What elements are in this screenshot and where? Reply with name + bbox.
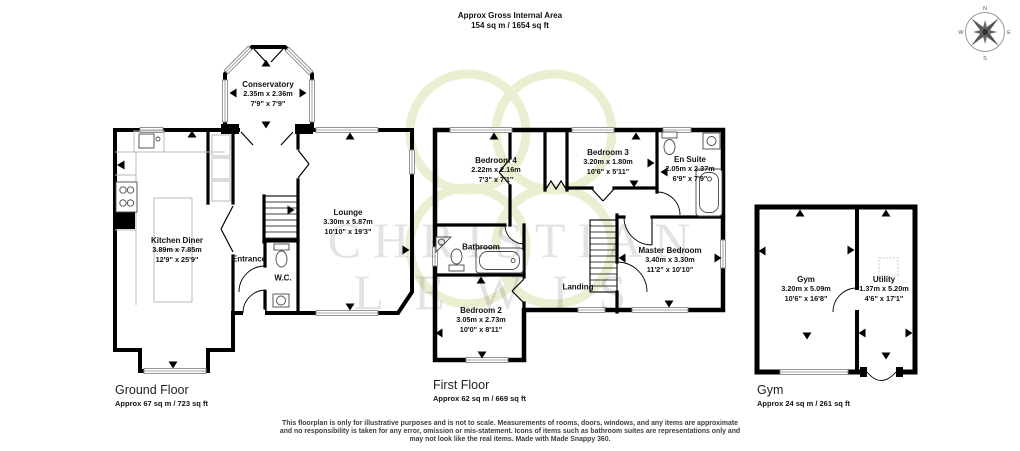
- disclaimer-line2: and no responsibility is taken for any e…: [0, 428, 1020, 436]
- ground-floor-label: Ground Floor Approx 67 sq m / 723 sq ft: [115, 383, 208, 408]
- window: [578, 308, 605, 313]
- toilet-icon: [662, 132, 677, 155]
- room-label-en-suite: En Suite 2.05m x 2.37m 6'9" x 7'9": [665, 155, 715, 183]
- window: [450, 128, 512, 133]
- first-floor-label: First Floor Approx 62 sq m / 669 sq ft: [433, 378, 526, 403]
- camera-marker: [288, 206, 295, 215]
- camera-marker: [262, 122, 271, 129]
- door-arc: [833, 288, 857, 312]
- gross-area-value: 154 sq m / 1654 sq ft: [0, 21, 1020, 31]
- compass-south-label: S: [983, 56, 987, 62]
- corner-sink-icon: [436, 237, 451, 252]
- compass-west-label: W: [958, 30, 964, 36]
- room-label-utility: Utility 1.37m x 5.20m 4'6" x 17'1": [859, 275, 909, 303]
- door-jamb: [860, 367, 867, 377]
- room-label-entrance: Entrance: [232, 254, 266, 263]
- tank-icon: [879, 258, 898, 276]
- room-label-bathroom: Bathroom: [462, 242, 500, 251]
- camera-marker: [882, 353, 891, 360]
- room-label-kitchen-diner: Kitchen Diner 3.89m x 7.85m 12'9" x 25'9…: [151, 236, 203, 264]
- camera-marker: [619, 254, 626, 263]
- room-label-master-bedroom: Master Bedroom 3.40m x 3.30m 11'2" x 10'…: [638, 246, 701, 274]
- window: [316, 311, 378, 316]
- cupboard: [212, 158, 230, 179]
- disclaimer-line1: This floorplan is only for illustrative …: [0, 420, 1020, 428]
- toilet-icon: [449, 249, 464, 271]
- room-label-landing: Landing: [562, 282, 593, 291]
- camera-marker: [665, 301, 674, 308]
- hob-icon: [116, 182, 137, 212]
- room-label-bedroom-4: Bedroom 4 2.22m x 2.16m 7'3" x 7'1": [471, 156, 521, 184]
- camera-marker: [859, 329, 866, 338]
- gym-floor-label: Gym Approx 24 sq m / 261 sq ft: [757, 383, 850, 408]
- cupboard: [212, 181, 230, 201]
- gym-windows: [780, 370, 848, 375]
- floorplan-page: N E S W CHRISTIAN LEWIS Approx Gross Int…: [0, 0, 1020, 451]
- camera-marker: [346, 133, 355, 140]
- gross-area-title: Approx Gross Internal Area: [0, 11, 1020, 21]
- camera-marker: [346, 304, 355, 311]
- sink-icon: [273, 294, 289, 307]
- window: [310, 80, 315, 122]
- open-door: [298, 150, 309, 178]
- header: Approx Gross Internal Area 154 sq m / 16…: [0, 11, 1020, 30]
- room-label-bedroom-2: Bedroom 2 3.05m x 2.73m 10'0" x 8'11": [456, 306, 506, 334]
- camera-marker: [906, 329, 913, 338]
- camera-marker: [882, 210, 891, 217]
- window: [224, 46, 252, 74]
- window: [140, 128, 163, 133]
- camera-marker: [759, 247, 766, 256]
- open-door: [221, 206, 233, 252]
- sink-icon: [703, 133, 720, 149]
- ground-floor-stairs: [264, 196, 298, 242]
- wall-post: [221, 124, 239, 134]
- disclaimer: This floorplan is only for illustrative …: [0, 420, 1020, 444]
- window: [466, 358, 508, 363]
- camera-marker: [230, 89, 237, 98]
- room-label-wc: W.C.: [274, 273, 291, 282]
- window: [285, 47, 313, 75]
- compass-east-label: E: [1007, 30, 1011, 36]
- window: [632, 308, 688, 313]
- french-doors: [241, 132, 293, 145]
- bath-icon: [476, 248, 523, 273]
- camera-marker: [117, 161, 125, 170]
- door-arc: [239, 266, 265, 292]
- window: [721, 240, 726, 268]
- camera-marker: [632, 133, 641, 140]
- kitchen-sink-icon: [134, 131, 164, 152]
- french-doors: [254, 49, 283, 62]
- window: [780, 370, 848, 375]
- door-arc: [624, 217, 652, 245]
- chimney-breast: [113, 211, 135, 229]
- room-label-conservatory: Conservatory 2.35m x 2.36m 7'9" x 7'9": [242, 80, 294, 108]
- door-jamb: [896, 367, 903, 377]
- camera-marker: [262, 60, 271, 67]
- room-label-gym: Gym 3.20m x 5.09m 10'6" x 16'8": [781, 275, 831, 303]
- camera-marker: [796, 210, 805, 217]
- window: [410, 150, 415, 174]
- camera-marker: [477, 277, 486, 284]
- room-label-bedroom-3: Bedroom 3 3.20m x 1.80m 10'6" x 5'11": [583, 148, 633, 176]
- camera-marker: [848, 246, 855, 255]
- camera-marker: [169, 362, 178, 369]
- cupboard: [212, 135, 230, 156]
- toilet-icon: [274, 244, 289, 267]
- camera-marker: [803, 333, 812, 340]
- window: [144, 369, 206, 374]
- camera-marker: [300, 89, 307, 98]
- window: [223, 80, 228, 122]
- room-label-lounge: Lounge 3.30m x 5.87m 10'10" x 19'3": [323, 208, 373, 236]
- window: [572, 128, 614, 133]
- camera-marker: [648, 159, 655, 168]
- window: [316, 128, 378, 133]
- disclaimer-line3: may not look like the real items. Made w…: [0, 436, 1020, 444]
- door-arc: [657, 192, 680, 215]
